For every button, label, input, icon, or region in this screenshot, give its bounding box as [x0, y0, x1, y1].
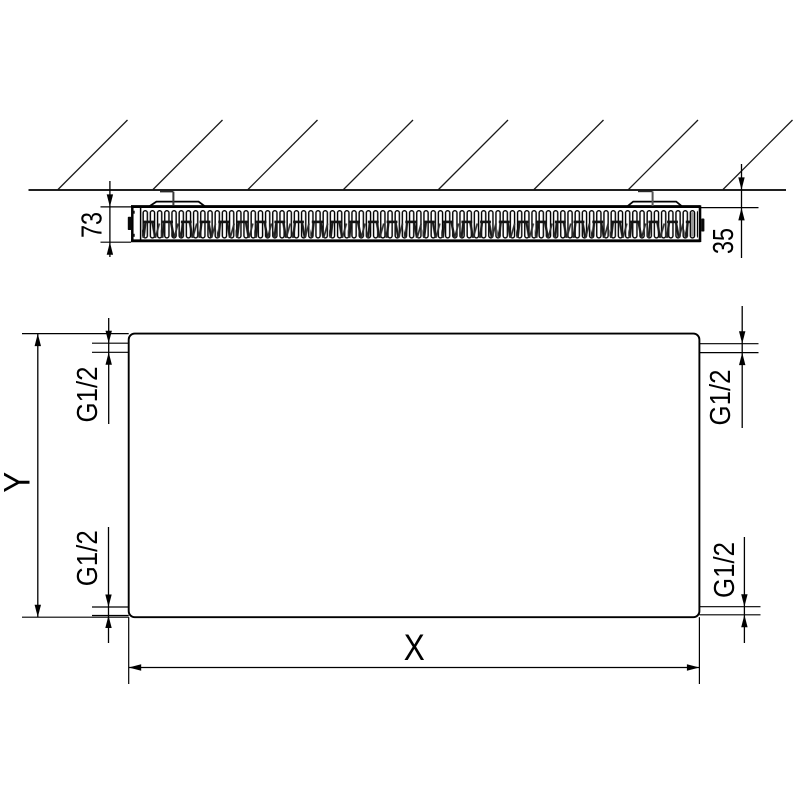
- svg-text:G1/2: G1/2: [72, 530, 104, 586]
- svg-text:X: X: [404, 627, 425, 668]
- svg-text:G1/2: G1/2: [709, 542, 741, 598]
- svg-text:G1/2: G1/2: [72, 367, 104, 423]
- svg-text:G1/2: G1/2: [705, 370, 737, 426]
- svg-text:73: 73: [77, 212, 109, 238]
- svg-text:Y: Y: [0, 472, 37, 493]
- svg-text:35: 35: [708, 228, 740, 254]
